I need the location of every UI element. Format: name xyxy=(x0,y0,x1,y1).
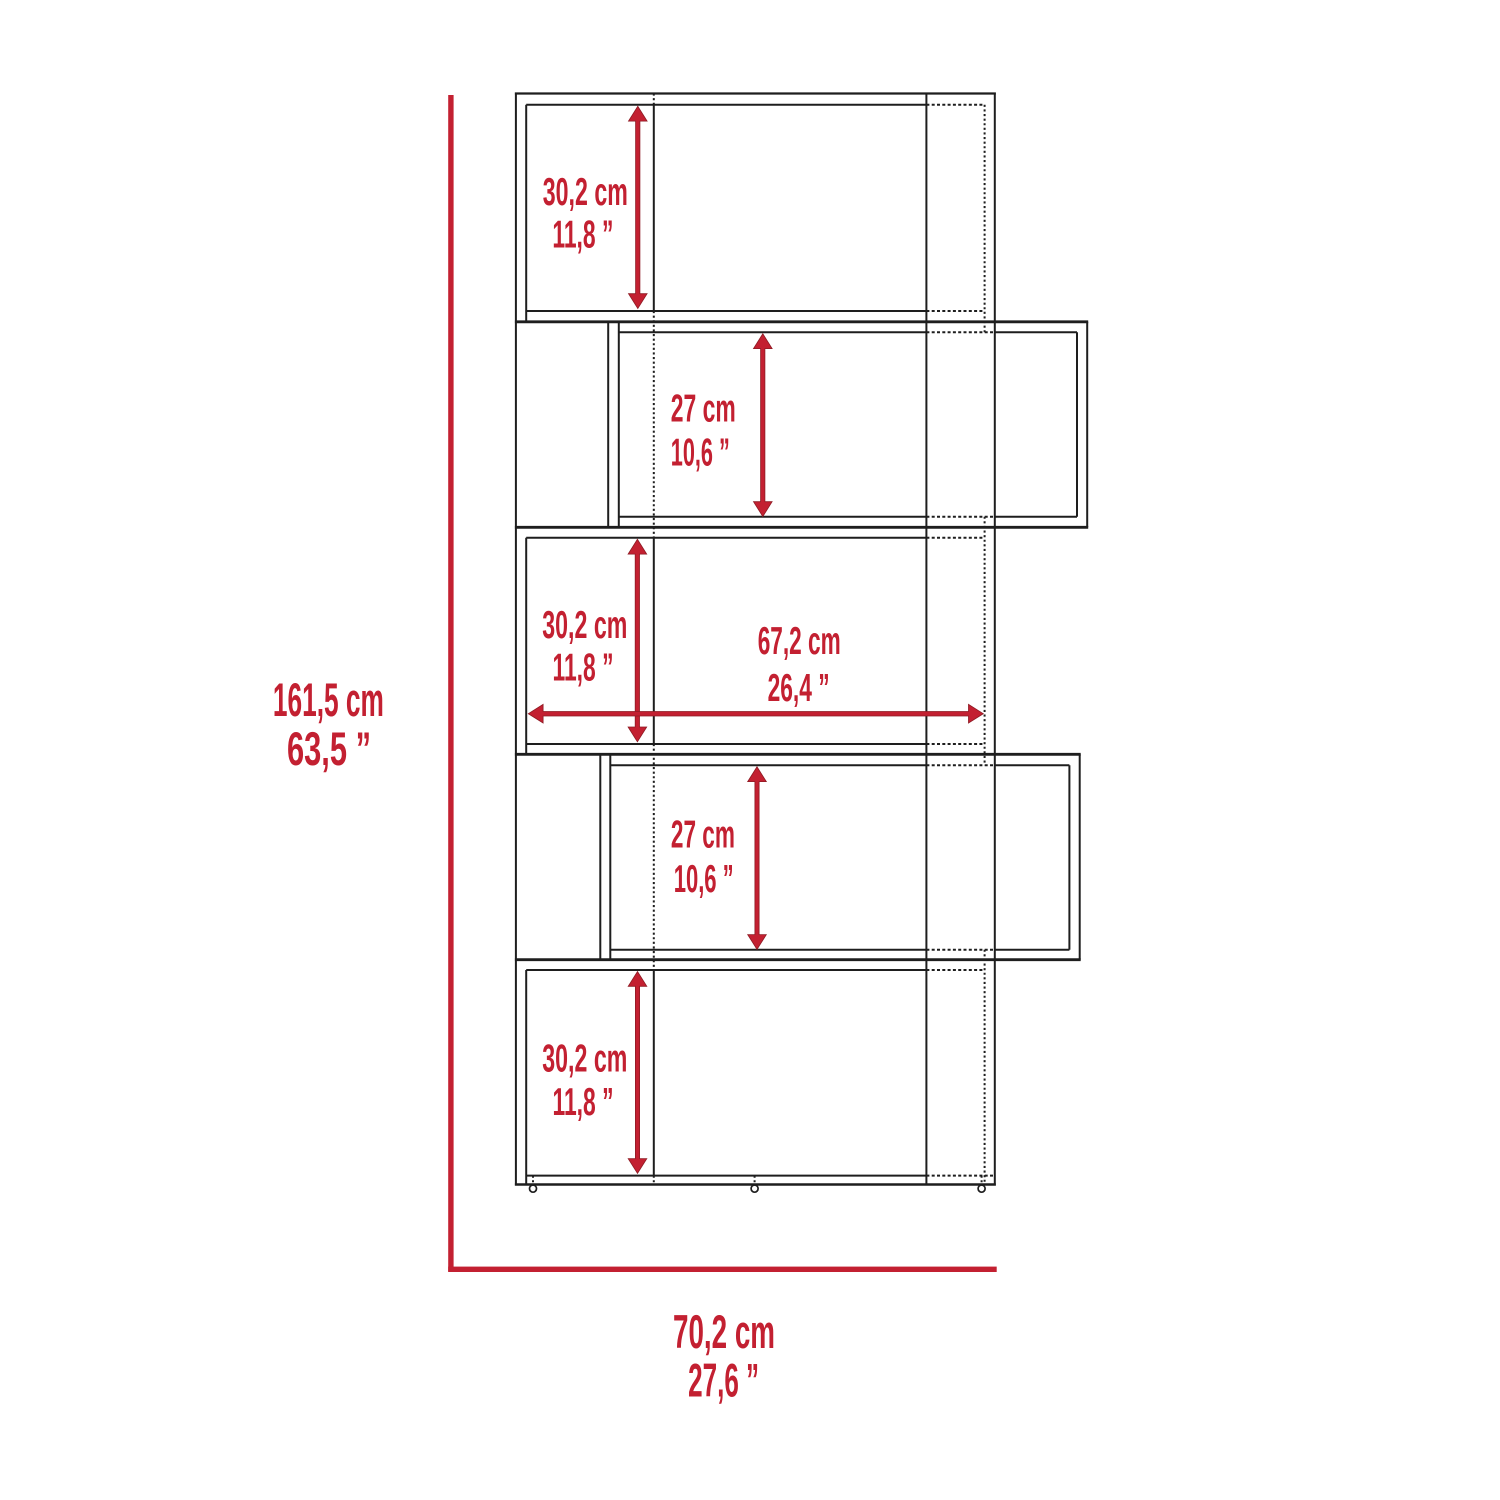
svg-text:10,6 ”: 10,6 ” xyxy=(671,431,730,474)
svg-text:70,2 cm: 70,2 cm xyxy=(673,1305,775,1358)
svg-text:10,6 ”: 10,6 ” xyxy=(674,858,734,901)
svg-text:67,2 cm: 67,2 cm xyxy=(758,620,841,663)
svg-text:30,2 cm: 30,2 cm xyxy=(542,1038,627,1081)
svg-text:27 cm: 27 cm xyxy=(671,387,736,430)
svg-text:27,6 ”: 27,6 ” xyxy=(688,1353,759,1406)
svg-text:161,5 cm: 161,5 cm xyxy=(273,673,384,726)
svg-text:26,4 ”: 26,4 ” xyxy=(768,667,830,710)
svg-text:27 cm: 27 cm xyxy=(671,813,735,856)
svg-text:11,8 ”: 11,8 ” xyxy=(552,214,613,257)
svg-text:11,8 ”: 11,8 ” xyxy=(553,1081,614,1124)
svg-text:63,5 ”: 63,5 ” xyxy=(287,722,371,775)
svg-text:30,2 cm: 30,2 cm xyxy=(542,604,627,647)
svg-text:30,2 cm: 30,2 cm xyxy=(543,171,628,214)
svg-text:11,8 ”: 11,8 ” xyxy=(553,647,614,690)
